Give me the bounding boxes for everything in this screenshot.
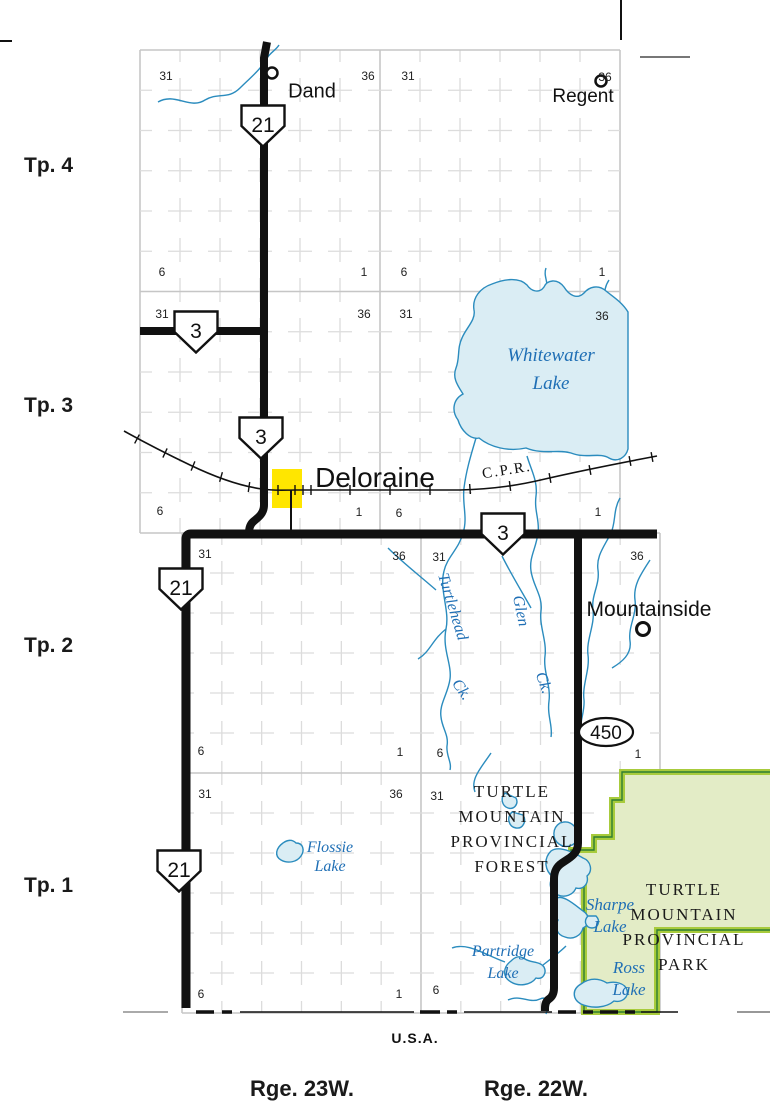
- svg-text:450: 450: [590, 723, 622, 744]
- provincial-park-label: TURTLE MOUNTAIN PROVINCIAL PARK: [623, 877, 746, 977]
- section-number: 6: [401, 265, 408, 279]
- map-stage: Dand Regent Deloraine Mountainside U.S.A…: [0, 0, 770, 1120]
- highway-shield-21: 21: [158, 567, 204, 611]
- section-number: 1: [599, 265, 606, 279]
- section-number: 1: [397, 745, 404, 759]
- neatline-fragments: [0, 0, 690, 57]
- shield-icon: 3: [238, 416, 284, 460]
- partridge-lake-label: Partridge Lake: [472, 941, 534, 985]
- highway-shield-3: 3: [238, 416, 284, 460]
- creek: [581, 533, 611, 734]
- dand-marker: [267, 68, 278, 79]
- provincial-forest-label: TURTLE MOUNTAIN PROVINCIAL FOREST: [451, 779, 574, 879]
- section-number: 6: [437, 746, 444, 760]
- section-number: 1: [635, 747, 642, 761]
- highway-shield-21: 21: [156, 849, 202, 893]
- range-label: Rge. 22W.: [484, 1076, 588, 1102]
- section-number: 31: [198, 547, 211, 561]
- svg-text:3: 3: [190, 320, 202, 343]
- shield-icon: 21: [158, 567, 204, 611]
- shield-icon: 21: [156, 849, 202, 893]
- township-label: Tp. 2: [24, 634, 73, 658]
- section-number: 31: [432, 550, 445, 564]
- section-number: 36: [361, 69, 374, 83]
- oval-shield-icon: 450: [577, 716, 635, 748]
- section-number: 6: [433, 983, 440, 997]
- highway-shield-3: 3: [480, 512, 526, 556]
- section-number: 36: [598, 70, 611, 84]
- mountainside-marker: [637, 623, 650, 636]
- town-label-regent: Regent: [552, 86, 613, 108]
- section-number: 6: [159, 265, 166, 279]
- township-label: Tp. 1: [24, 874, 73, 898]
- section-number: 31: [401, 69, 414, 83]
- svg-text:3: 3: [255, 426, 267, 449]
- section-number: 31: [198, 787, 211, 801]
- creek: [611, 498, 620, 533]
- section-number: 1: [396, 987, 403, 1001]
- section-number: 36: [630, 549, 643, 563]
- highway-shield-21: 21: [240, 104, 286, 148]
- shield-icon: 3: [173, 310, 219, 354]
- town-label-dand: Dand: [288, 81, 336, 104]
- section-number: 6: [157, 504, 164, 518]
- range-label: Rge. 23W.: [250, 1076, 354, 1102]
- town-label-mountainside: Mountainside: [587, 598, 712, 622]
- shield-icon: 21: [240, 104, 286, 148]
- section-number: 31: [430, 789, 443, 803]
- section-number: 36: [595, 309, 608, 323]
- svg-text:21: 21: [167, 859, 190, 882]
- section-number: 36: [357, 307, 370, 321]
- section-number: 31: [399, 307, 412, 321]
- shield-icon: 3: [480, 512, 526, 556]
- creek: [418, 629, 446, 659]
- section-number: 6: [198, 987, 205, 1001]
- section-number: 6: [198, 744, 205, 758]
- section-number: 31: [155, 307, 168, 321]
- section-number: 36: [392, 549, 405, 563]
- highway-450: [545, 533, 578, 1011]
- svg-text:3: 3: [497, 522, 509, 545]
- flossie-lake-label: Flossie Lake: [307, 838, 353, 876]
- section-number: 36: [389, 787, 402, 801]
- usa-label: U.S.A.: [391, 1030, 438, 1046]
- whitewater-lake-label: Whitewater Lake: [507, 342, 595, 398]
- section-number: 1: [361, 265, 368, 279]
- flossie-lake: [277, 840, 303, 862]
- section-number: 31: [159, 69, 172, 83]
- svg-text:21: 21: [169, 577, 192, 600]
- svg-text:21: 21: [251, 114, 274, 137]
- section-number: 6: [396, 506, 403, 520]
- town-label-deloraine: Deloraine: [315, 462, 435, 494]
- township-label: Tp. 4: [24, 154, 73, 178]
- highway-shield-3: 3: [173, 310, 219, 354]
- section-number: 1: [356, 505, 363, 519]
- section-number: 1: [595, 505, 602, 519]
- township-label: Tp. 3: [24, 394, 73, 418]
- deloraine-highlight: [272, 469, 302, 508]
